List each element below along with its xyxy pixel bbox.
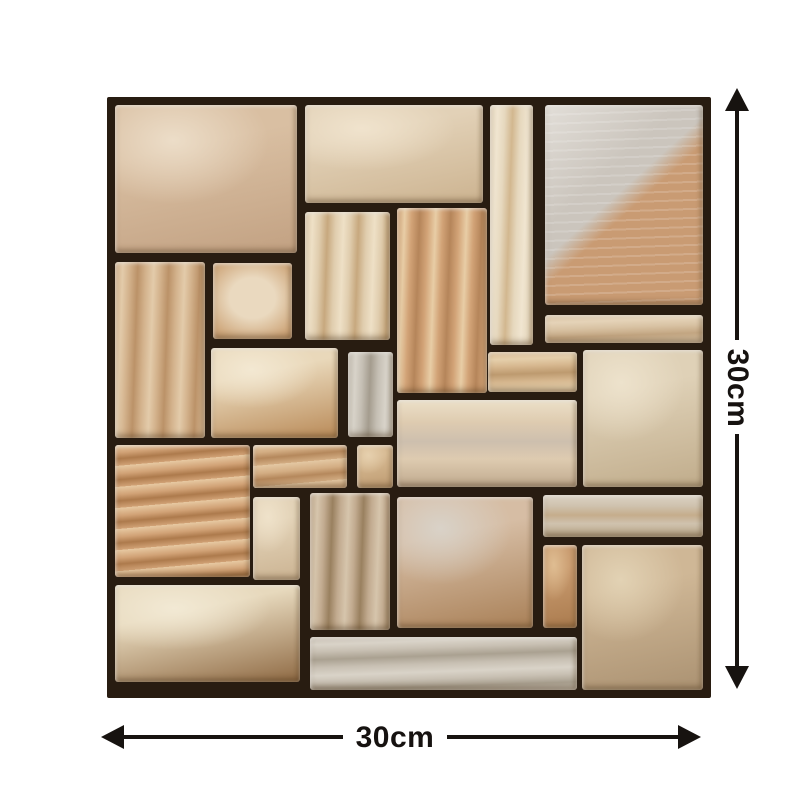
stone-tile-panel	[107, 97, 711, 698]
stone-mid-tall-cream	[305, 212, 390, 340]
arrow-right-icon	[678, 725, 701, 749]
stone-mid-bar-small	[357, 445, 393, 488]
stone-bottom-wide-gray	[310, 637, 577, 690]
stone-lower-center-large	[397, 497, 533, 628]
stone-top-right-diagonal	[545, 105, 703, 305]
stone-bottom-right-square	[582, 545, 703, 690]
width-dimension-label: 30cm	[335, 721, 455, 754]
stone-center-right-bar	[488, 352, 577, 392]
stone-top-middle	[305, 105, 483, 203]
stone-left-tall	[115, 262, 205, 438]
stone-bottom-left-large	[115, 585, 300, 682]
stone-center-cream	[211, 348, 338, 438]
product-image: 30cm 30cm	[0, 0, 800, 800]
arrow-left-icon	[101, 725, 124, 749]
stone-center-wide-banded	[397, 400, 577, 487]
stone-right-big-square	[583, 350, 703, 487]
stone-small-square	[213, 263, 292, 339]
stone-mid-tall-tan	[397, 208, 487, 393]
stone-lower-cream-strip	[253, 497, 300, 580]
stone-lower-orange-narrow	[543, 545, 577, 628]
height-arrow-shaft-bottom	[735, 434, 739, 668]
arrow-down-icon	[725, 666, 749, 689]
stone-center-gray-strip	[348, 352, 393, 437]
height-arrow-shaft-top	[735, 109, 739, 340]
stone-right-thin-strip	[545, 315, 703, 343]
stone-top-left-large	[115, 105, 297, 253]
stone-top-strip-vertical	[490, 105, 533, 345]
height-dimension-label: 30cm	[723, 330, 751, 446]
width-arrow-shaft-left	[122, 735, 343, 739]
stone-left-orange-ridged	[115, 445, 250, 577]
stone-lower-right-bar	[543, 495, 703, 537]
arrow-up-icon	[725, 88, 749, 111]
stone-lower-gray-tall	[310, 493, 390, 630]
width-arrow-shaft-right	[447, 735, 680, 739]
stone-mid-bar-tan	[253, 445, 347, 488]
